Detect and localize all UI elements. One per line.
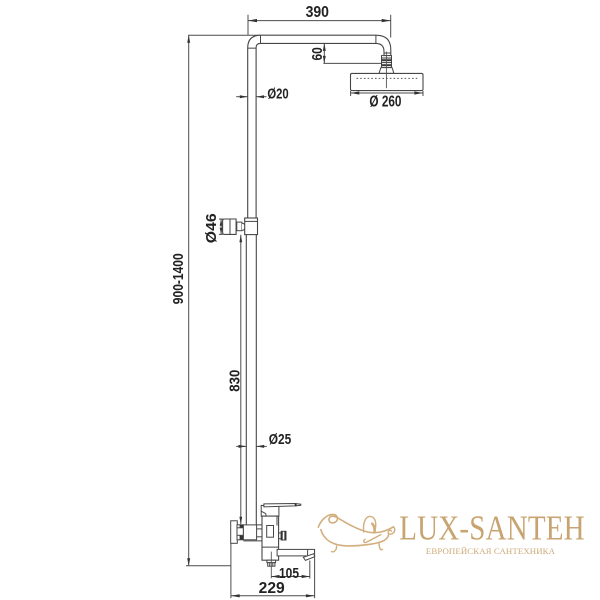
svg-text:Ø20: Ø20 [267,86,288,102]
svg-text:390: 390 [306,4,329,21]
svg-text:900-1400: 900-1400 [170,253,187,304]
svg-text:830: 830 [227,370,244,392]
svg-text:LUX-SANTEH: LUX-SANTEH [399,508,585,547]
svg-text:Ø25: Ø25 [269,432,292,448]
svg-text:Ø46: Ø46 [204,213,220,243]
svg-text:ЕВРОПЕЙСКАЯ САНТЕХНИКА: ЕВРОПЕЙСКАЯ САНТЕХНИКА [426,546,556,556]
svg-text:60: 60 [310,47,326,60]
svg-text:Ø 260: Ø 260 [369,94,401,111]
svg-text:229: 229 [259,580,285,597]
